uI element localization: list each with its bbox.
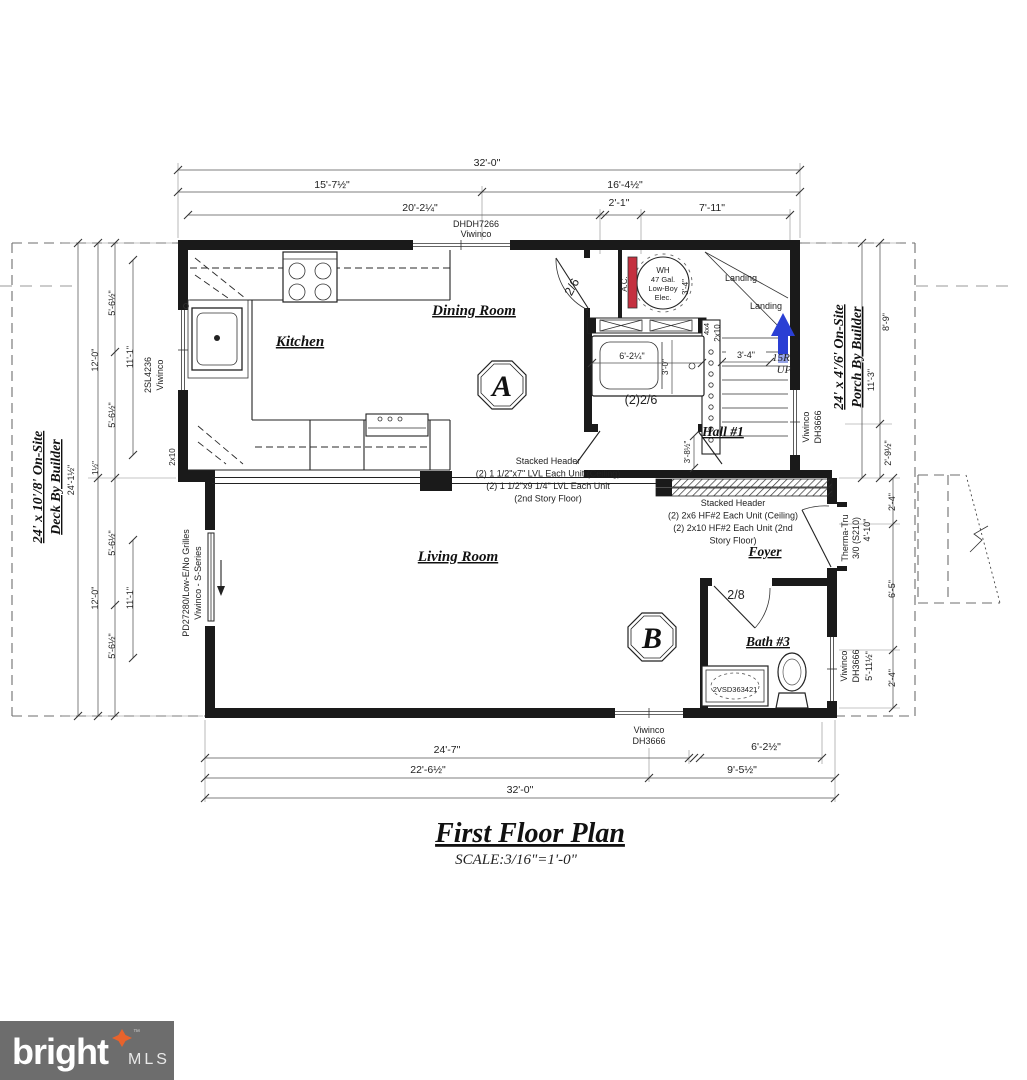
water-heater: WH 47 Gal. Low-Boy Elec. 3'-4" (634, 254, 692, 312)
left-dimensions: 24' x 10'/8' On-Site Deck By Builder 24'… (31, 239, 203, 720)
interior-walls (212, 250, 835, 710)
wh-line4: Elec. (655, 293, 672, 302)
dim-left-l56a: 5'-6½" (107, 530, 117, 555)
kitchen-sink (184, 300, 249, 378)
hdr-r1: Stacked Header (701, 498, 766, 508)
dining-label: Dining Room (431, 303, 516, 319)
marker-b-letter: B (641, 622, 662, 655)
bottom-dimensions: Viwinco DH3666 24'-7" 6'-2½" 22'-6½" 9'-… (201, 720, 839, 802)
stair-width-dim: 3'-4" (737, 350, 755, 360)
hdr-c3: (2) 1 1/2"x9 1/4" LVL Each Unit (486, 481, 610, 491)
hall-label: Hall #1 (701, 424, 744, 439)
landing-label-2: Landing (750, 301, 782, 311)
entry-door-width: 4'-10" (862, 519, 872, 542)
wh-line2: 47 Gal. (651, 275, 675, 284)
header-note-center: Stacked Header (2) 1 1/2"x7" LVL Each Un… (476, 456, 620, 504)
dim-bottom-226: 22'-6½" (410, 764, 446, 776)
section-marker-b: B (628, 613, 676, 661)
bath3-window-width: 5'-11½" (864, 651, 874, 681)
living-label: Living Room (417, 549, 498, 565)
dim-right-24a: 2'-4" (887, 493, 897, 511)
ac-chase: A.C. (620, 257, 637, 308)
kitchen-window-brand: Viwinco (155, 360, 165, 391)
bath3-window-model: DH3666 (851, 649, 861, 682)
hdr-c2: (2) 1 1/2"x7" LVL Each Unit (Ceiling) (476, 469, 620, 479)
patio-door-model: PD27280/Low-E/No Grilles (181, 529, 191, 637)
bottom-window-brand: Viwinco (634, 725, 665, 735)
entry-door-brand: Therma-Tru (840, 514, 850, 561)
dim-right-24b: 2'-4" (887, 669, 897, 687)
dim-porch-113: 11'-3" (866, 369, 876, 391)
dim-right-65: 6'-5" (887, 580, 897, 598)
dim-bottom-total: 32'-0" (507, 784, 534, 796)
header-note-right: Stacked Header (2) 2x6 HF#2 Each Unit (C… (668, 498, 798, 546)
dim-porch-89: 8'-9" (881, 313, 891, 331)
bath3-window-brand: Viwinco (839, 651, 849, 682)
hdr-r4: Story Floor) (709, 536, 756, 546)
hall-height-dim: 3'-8½" (683, 441, 692, 464)
dim-left-l12: 12'-0" (90, 587, 100, 610)
dining-window-brand: Viwinco (461, 229, 492, 239)
floor-plan-drawing: 32'-0" 15'-7½" 16'-4½" 20'-2¼" 2'-1" 7'-… (0, 0, 1027, 1080)
dim-left-u111: 11'-1" (125, 346, 135, 368)
stove (283, 252, 337, 302)
stair-window-model: DH3666 (813, 410, 823, 443)
dim-top-left: 15'-7½" (314, 179, 350, 191)
kitchen-label: Kitchen (275, 334, 324, 350)
logo-brand-text: bright (12, 1031, 109, 1072)
dishwasher (366, 414, 428, 436)
floor-plan-page: 32'-0" 15'-7½" 16'-4½" 20'-2¼" 2'-1" 7'-… (0, 0, 1027, 1080)
chase-red-marker (628, 257, 637, 308)
brightmls-logo: bright ™ MLS (0, 1021, 174, 1080)
hall-bath: 6'-2¼" 3'-0" (2)2/6 (576, 336, 722, 464)
dim-bottom-247: 24'-7" (434, 744, 461, 756)
hdr-r2: (2) 2x6 HF#2 Each Unit (Ceiling) (668, 511, 798, 521)
dim-top-right: 16'-4½" (607, 179, 643, 191)
dim-top-b: 2'-1" (609, 197, 630, 209)
deck-note-line1: 24' x 10'/8' On-Site (31, 431, 46, 544)
dim-left-gap: 1½" (91, 461, 100, 475)
joist-label: 2x10 (168, 448, 177, 466)
plan-scale: SCALE:3/16"=1'-0" (455, 852, 577, 868)
dim-top-c: 7'-11" (699, 202, 725, 214)
dim-left-l111: 11'-1" (125, 587, 135, 609)
bath2-doors-label: (2)2/6 (625, 393, 658, 407)
dim-left-u56b: 5'-6½" (107, 402, 117, 427)
logo-tm: ™ (133, 1029, 140, 1036)
bath3-label: Bath #3 (745, 634, 790, 649)
dim-left-total: 24'-1½" (66, 465, 76, 495)
title-block: First Floor Plan SCALE:3/16"=1'-0" (434, 818, 625, 868)
vanity-model: 2VSD363421 (713, 685, 758, 694)
section-marker-a: A (478, 361, 526, 409)
dim-left-u12: 12'-0" (90, 349, 100, 372)
bottom-window-model: DH3666 (632, 736, 665, 746)
dim-porch-29: 2'-9½" (883, 440, 893, 465)
dim-left-l56b: 5'-6½" (107, 633, 117, 658)
dining-window-model: DHDH7266 (453, 219, 499, 229)
stair-stringer-label: 2x10 (713, 324, 722, 342)
wh-line1: WH (656, 266, 670, 275)
toilet (776, 653, 808, 708)
hdr-c4: (2nd Story Floor) (514, 494, 582, 504)
porch-note-line2: Porch By Builder (850, 306, 865, 408)
hall-dimension: 3'-8½" (683, 432, 698, 472)
tub-depth-dim: 3'-0" (661, 359, 670, 375)
closet-door: 2/6 (556, 258, 588, 310)
deck-note-line2: Deck By Builder (49, 439, 64, 536)
wh-line3: Low-Boy (648, 284, 677, 293)
porch-note-line1: 24' x 4'/6' On-Site (832, 304, 847, 410)
stair-post-label: 4x4 (702, 323, 711, 335)
plan-title: First Floor Plan (434, 818, 625, 849)
dim-top-a: 20'-2¼" (402, 202, 438, 214)
top-dimensions: 32'-0" 15'-7½" 16'-4½" 20'-2¼" 2'-1" 7'-… (174, 157, 804, 254)
stair-window-brand: Viwinco (801, 412, 811, 443)
ac-label: A.C. (620, 276, 629, 292)
landing-label-1: Landing (725, 273, 757, 283)
hdr-r3: (2) 2x10 HF#2 Each Unit (2nd (673, 523, 793, 533)
bath3-door-label: 2/8 (727, 588, 744, 602)
stair-risers: 15R (772, 352, 790, 364)
patio-door (208, 533, 225, 621)
kitchen-window-model: 2SL4236 (143, 357, 153, 393)
stair-up: UP (777, 364, 792, 376)
blocking-wall (588, 318, 706, 333)
marker-a-letter: A (490, 370, 512, 403)
wh-closet-width: 3'-4" (681, 279, 690, 295)
foyer-label: Foyer (748, 544, 783, 559)
vanity: 2VSD363421 (702, 666, 768, 706)
hdr-c1: Stacked Header (516, 456, 581, 466)
dim-bottom-95: 9'-5½" (727, 764, 757, 776)
entry-door-size: 3/0 (S210) (851, 517, 861, 559)
tub-width-dim: 6'-2¼" (619, 351, 644, 361)
dim-left-u56a: 5'-6½" (107, 290, 117, 315)
dim-bottom-62: 6'-2½" (751, 741, 781, 753)
porch-steps (918, 475, 1000, 603)
patio-door-brand: Viwinco - S-Series (193, 546, 203, 620)
dim-top-total: 32'-0" (474, 157, 501, 169)
logo-suffix-text: MLS (128, 1051, 170, 1068)
